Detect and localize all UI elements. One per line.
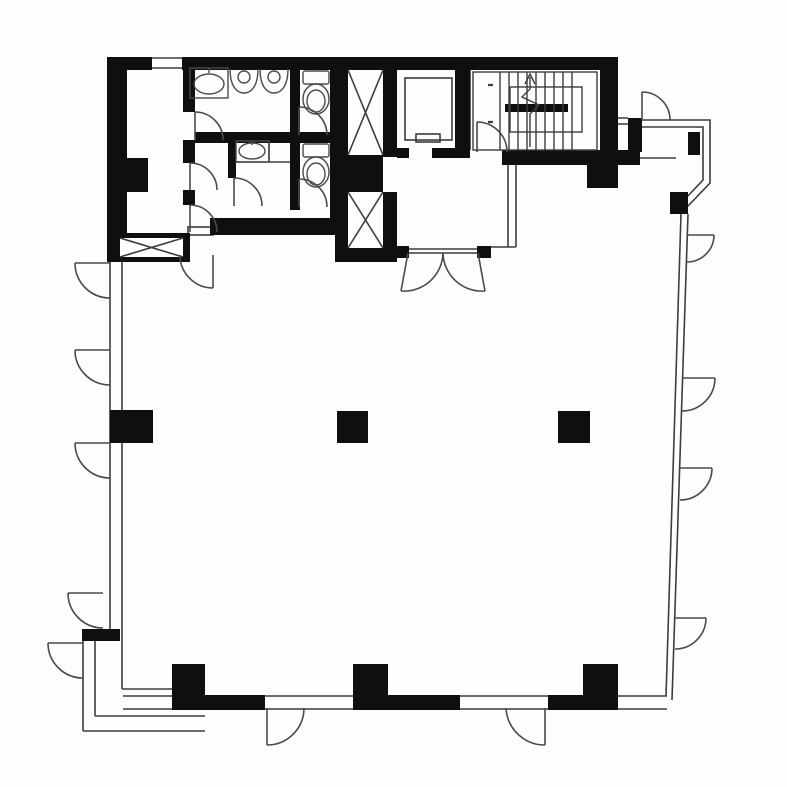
shaft-divider-c [183,190,195,205]
floor-plan-drawing [0,0,787,787]
elevator-bottom-wall [335,248,397,262]
column-mid-right [558,411,590,443]
womens-entry-wall [228,143,236,178]
stair-corner-stub [587,165,618,188]
shaft-divider-a [183,70,195,112]
column-bottom-center [353,664,388,710]
elevator-right-wall-upper [383,57,397,157]
bottom-wall-seg-c [548,695,618,710]
column-bottom-left [172,664,205,710]
elevator-left-wall [335,57,348,262]
ev-room-bottom-b [432,148,470,158]
shaft-step [122,158,148,192]
shaft-divider-b [183,140,195,163]
elevator-mid-wall [348,155,383,192]
balcony-wall-block-a [628,118,642,152]
corner-column-top-right [670,192,688,214]
top-wall-b [182,57,618,70]
left-wall-header [82,629,120,641]
bottom-wall-seg-a [205,695,265,710]
top-wall-a [107,57,152,70]
column-bottom-right [583,664,618,695]
ev-room-door-notch [409,148,432,158]
ev-room-bottom-a [397,148,409,158]
bottom-wall-seg-b [388,695,460,710]
ev-room-right-wall [455,70,470,150]
balcony-column [688,132,700,155]
restroom-bottom-wall [210,218,345,235]
stair-bottom-wall [502,150,640,165]
column-mid-left [110,410,153,443]
floor-plan-page [0,0,787,787]
column-mid-center [337,411,368,443]
stair-right-wall [600,57,618,165]
